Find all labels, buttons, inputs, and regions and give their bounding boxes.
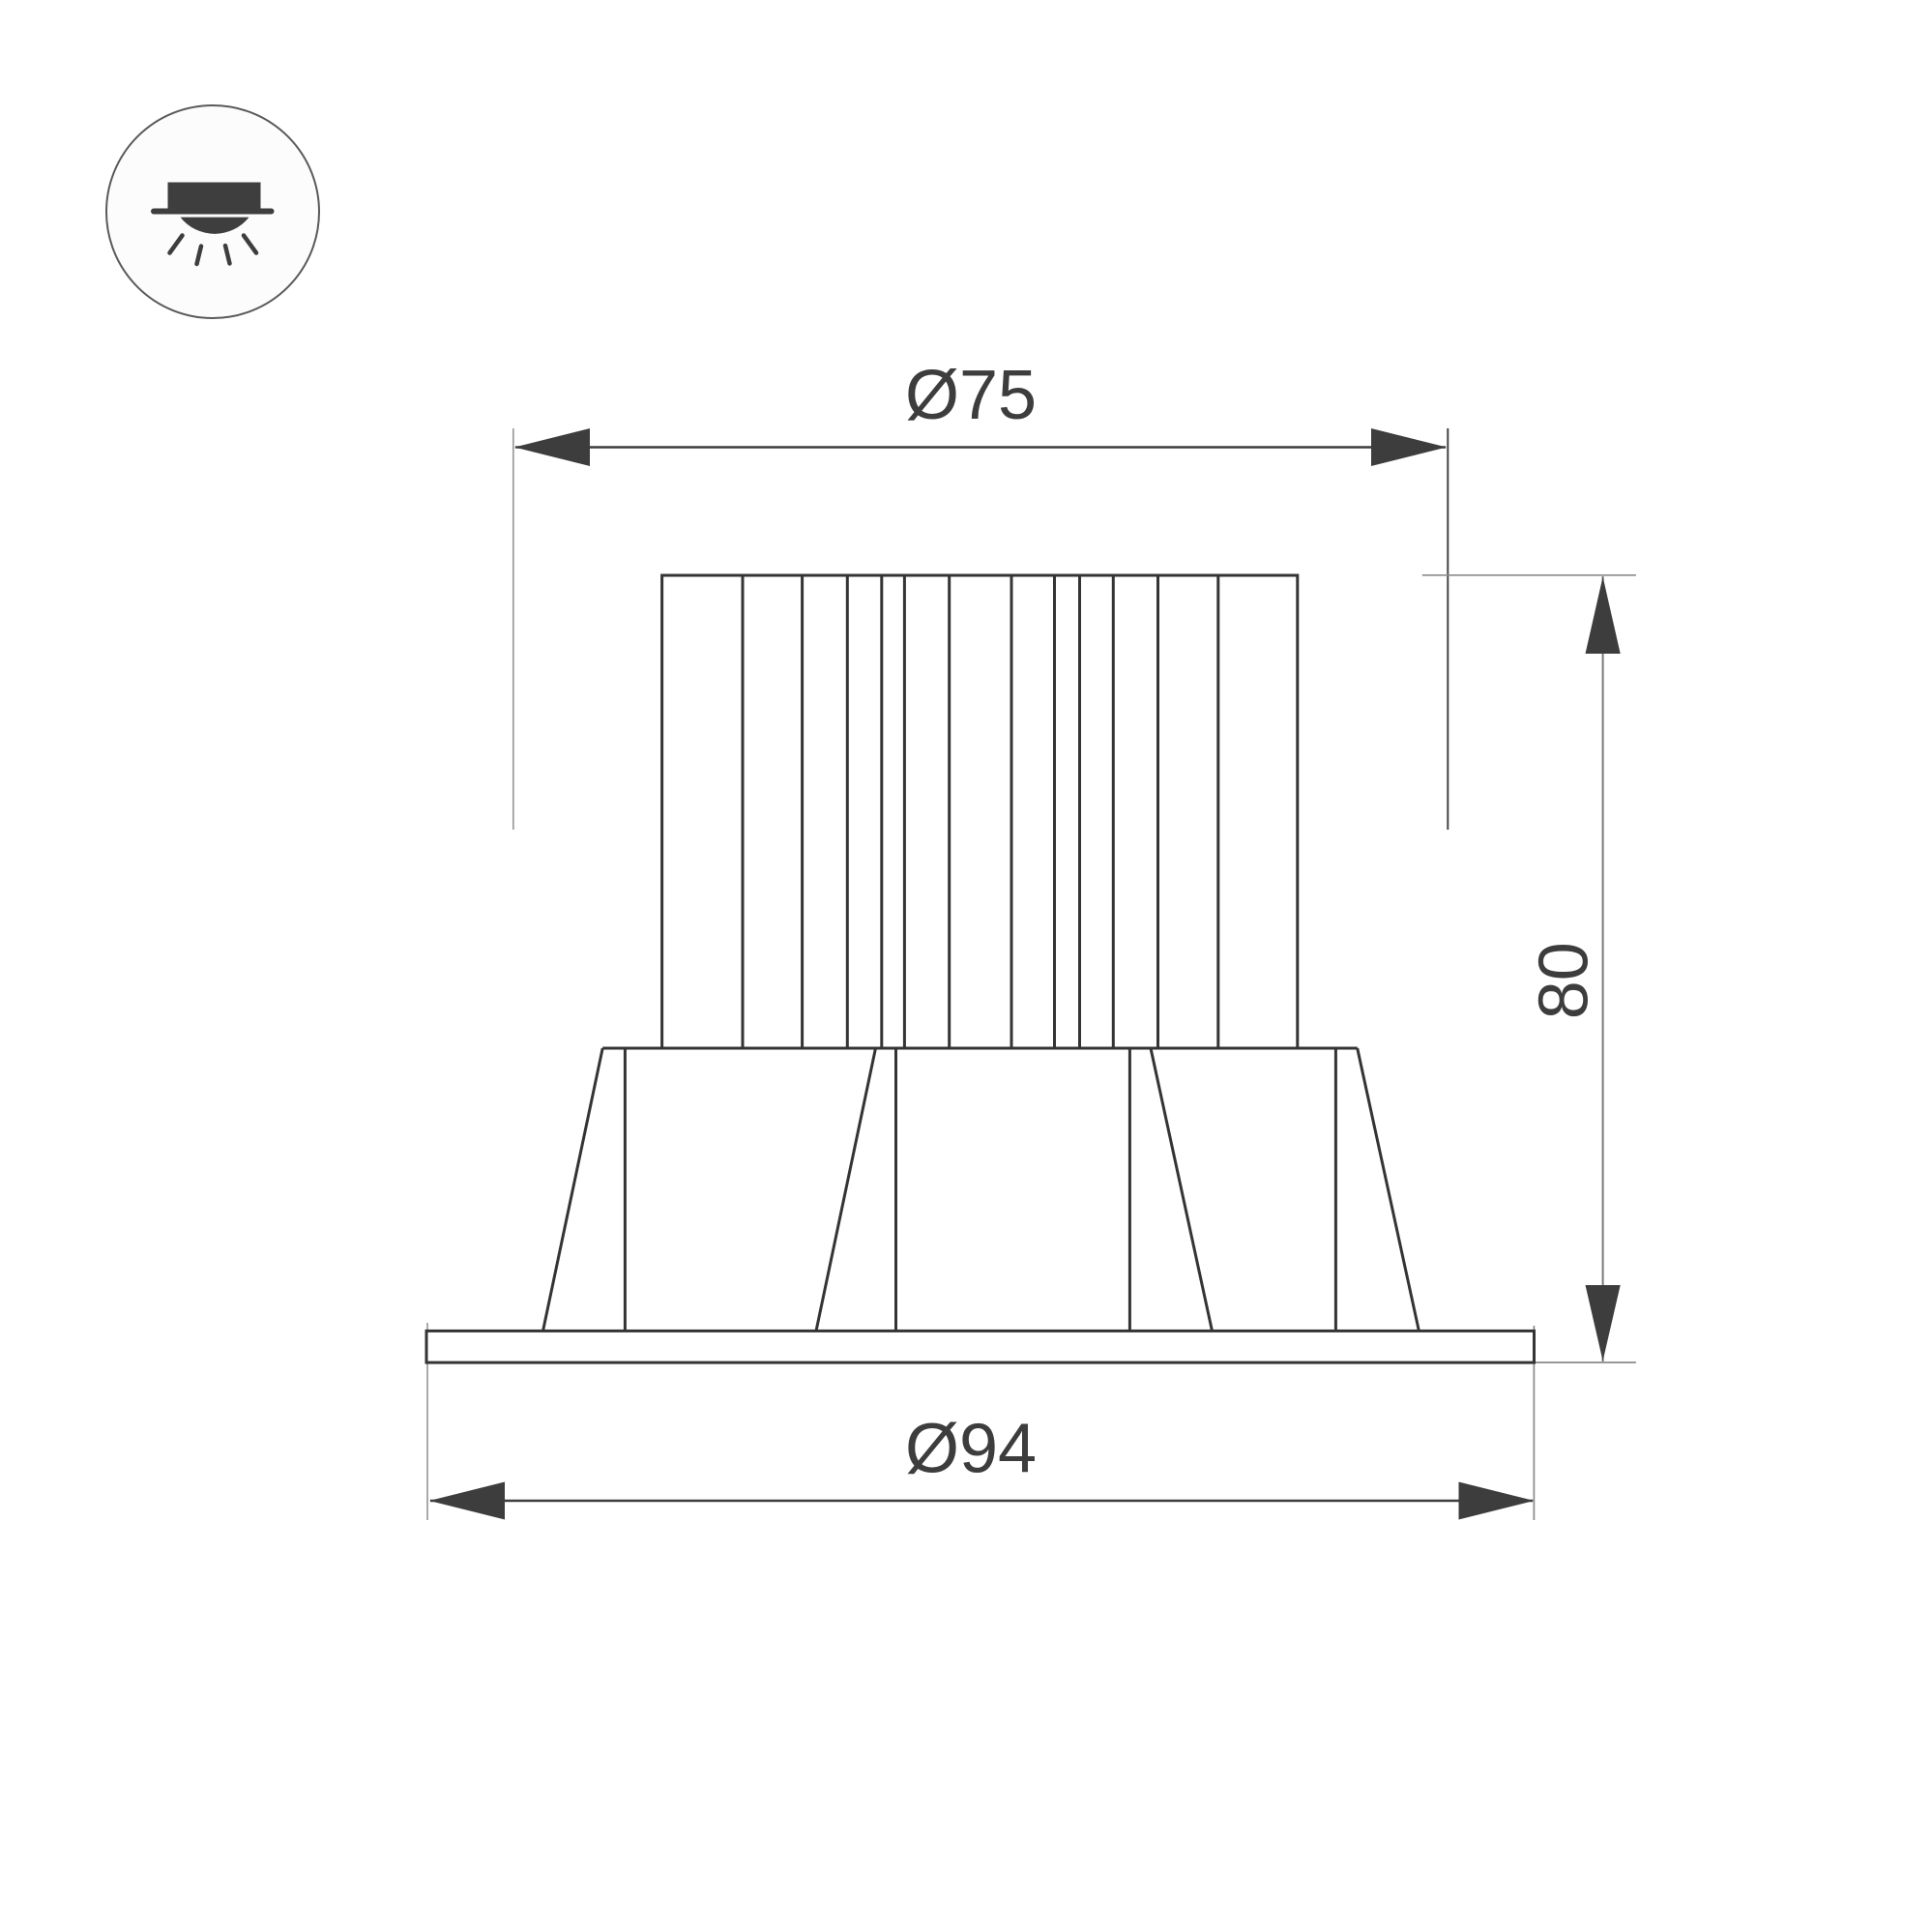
svg-text:Ø75: Ø75 — [905, 357, 1037, 434]
svg-text:80: 80 — [1526, 942, 1603, 1019]
svg-text:Ø94: Ø94 — [905, 1411, 1037, 1488]
